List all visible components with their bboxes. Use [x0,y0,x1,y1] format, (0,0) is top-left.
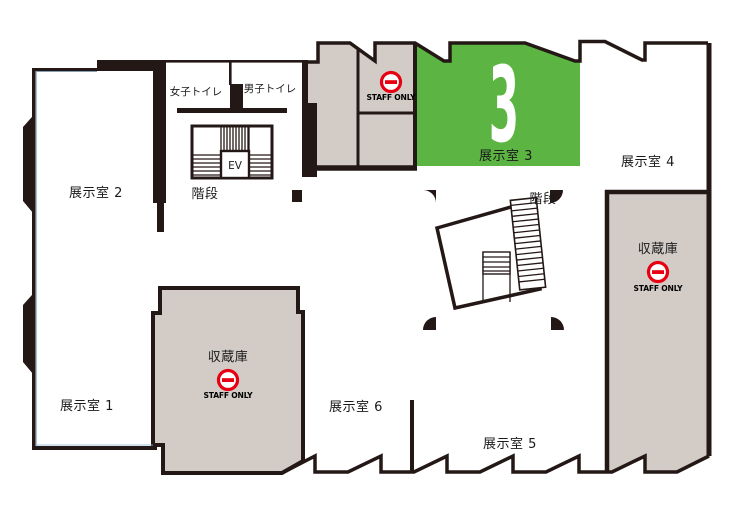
storage-center-staff-only-label: STAFF ONLY [204,391,254,400]
wall-room2-right-stub [157,203,164,232]
storage-center-label: 収蔵庫 [208,350,249,365]
mens-toilet-label: 男子トイレ [244,83,297,95]
no-entry-bar [222,378,234,382]
room-2-label: 展示室 2 [69,185,123,201]
room-3-label: 展示室 3 [479,148,533,164]
wall-toilet-top [166,60,302,63]
staffroom-staff-only-label: STAFF ONLY [367,93,417,102]
stairs-center-label: 階段 [529,192,556,207]
wall-top-thin [32,68,97,71]
wall-room2-right [153,60,166,203]
storage-east-staff-only-label: STAFF ONLY [634,284,684,293]
wall-toilet-divider [229,60,232,85]
stairs-main-treads-top [224,126,248,151]
wall-top-thick [97,60,161,71]
pillar-toilet [230,84,243,112]
stairs-main-label: 階段 [191,187,218,202]
no-entry-icon-storage-east [649,263,668,282]
no-entry-bar [385,80,397,84]
no-entry-icon-staffroom [382,73,401,92]
no-entry-icon-storage-center [219,371,238,390]
wall-staffarea-left-upper [302,60,308,105]
room-3-number: 3 [489,45,519,166]
no-entry-bar [652,270,664,274]
pillar-lobby [292,190,302,202]
room-6-label: 展示室 6 [329,399,383,415]
room-1-label: 展示室 1 [60,398,114,414]
room-5-label: 展示室 5 [483,436,537,452]
storage-east-area [605,190,711,473]
elevator-label: EV [228,160,243,172]
storage-east-label: 収蔵庫 [638,242,679,257]
room-4-label: 展示室 4 [621,154,675,170]
wall-room1-bottom [32,446,157,450]
wall-toilet-bottom [177,108,287,113]
floor-map-page: 展示室 2 展示室 1 3 展示室 3 展示室 4 展示室 5 展示室 6 女子… [0,0,737,510]
wall-pillar-left-lower [23,291,36,377]
floor-plan: 展示室 2 展示室 1 3 展示室 3 展示室 4 展示室 5 展示室 6 女子… [0,0,737,510]
wall-pillar-left-upper [23,113,36,216]
womens-toilet-label: 女子トイレ [170,85,223,98]
